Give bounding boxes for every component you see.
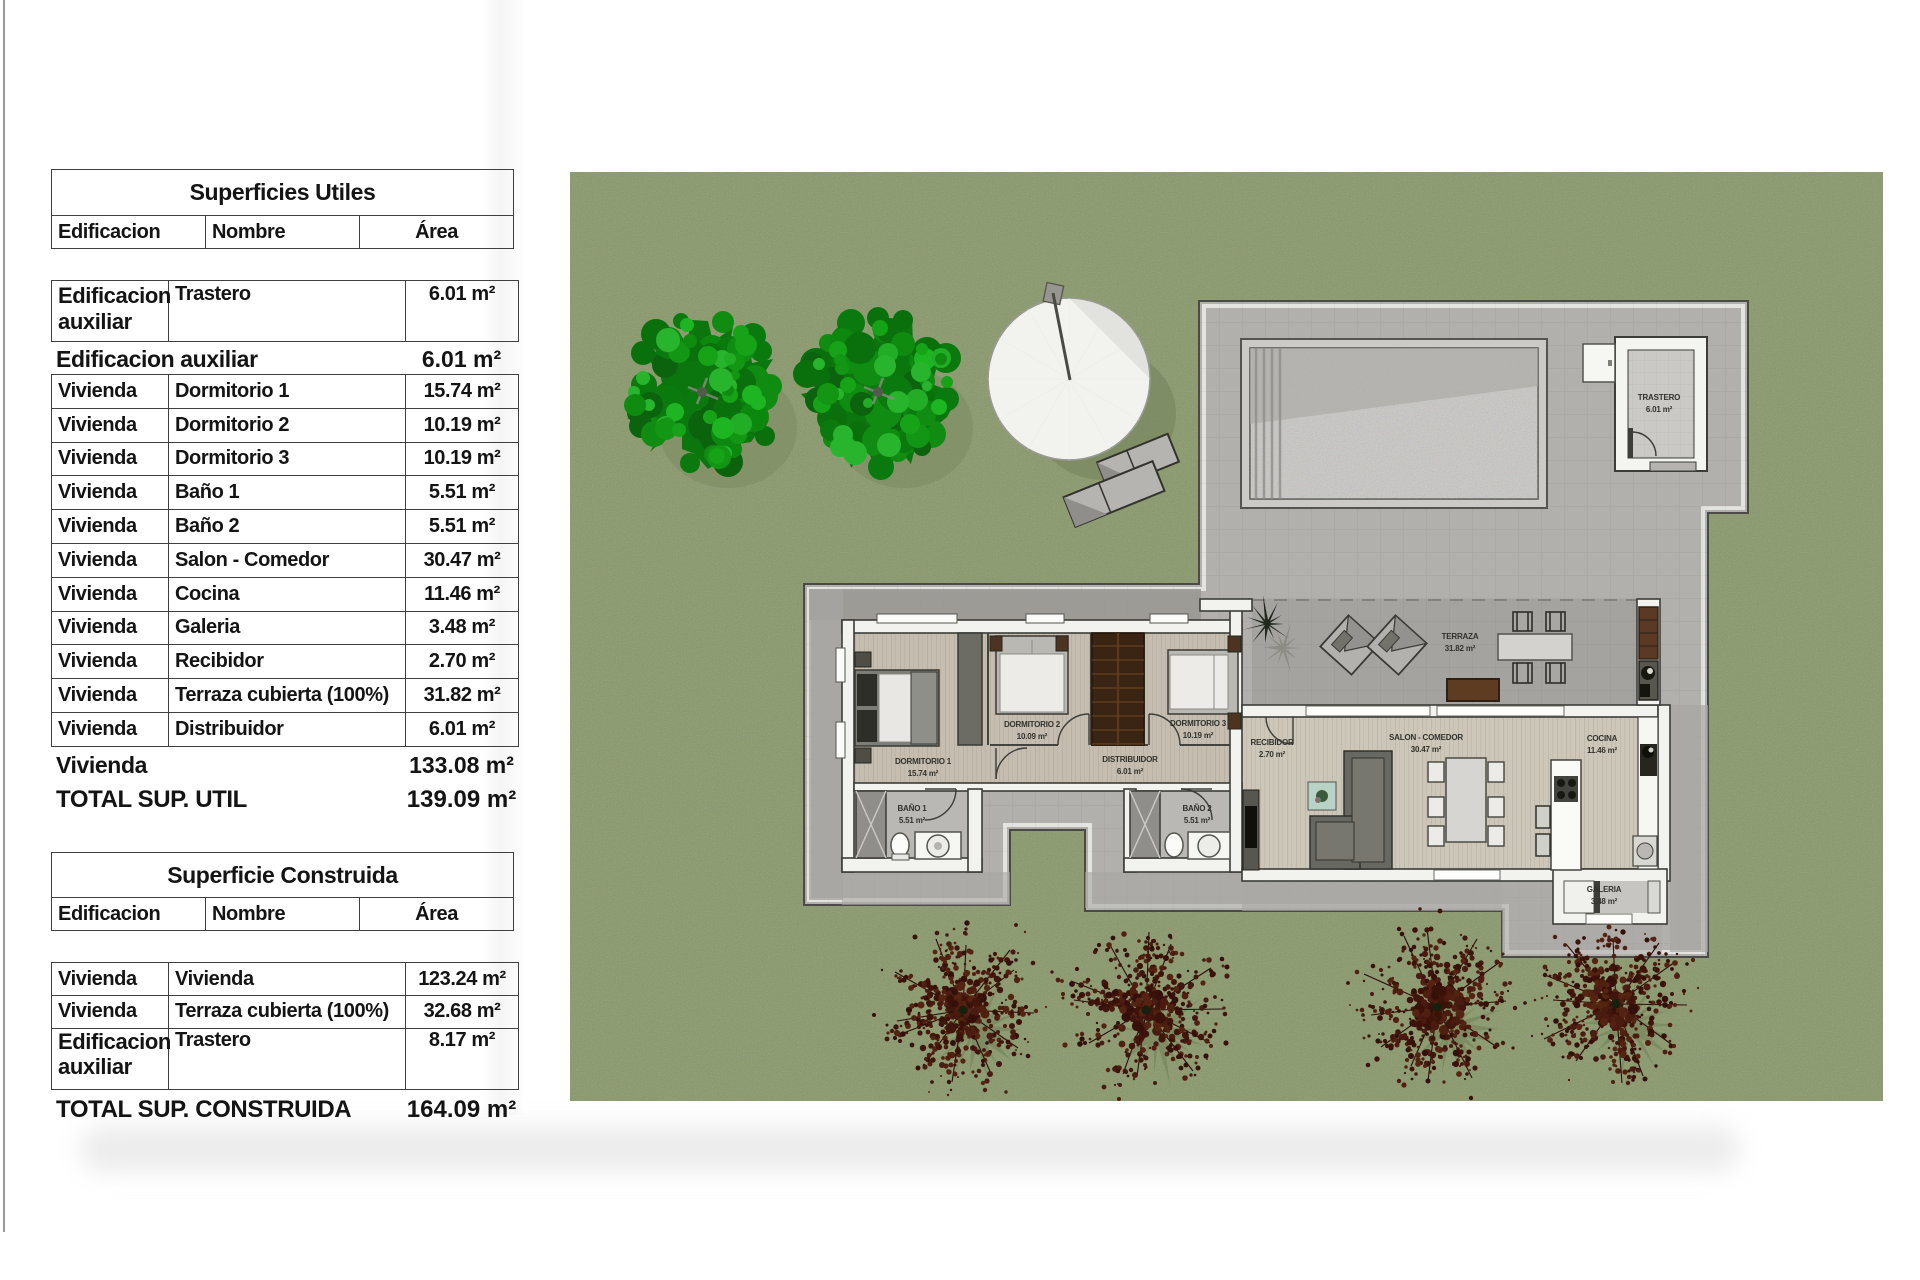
svg-text:10.09 m²: 10.09 m² [1017,732,1048,741]
svg-text:6.01 m²: 6.01 m² [1117,767,1144,776]
svg-text:BAÑO 1: BAÑO 1 [897,804,927,813]
svg-text:DORMITORIO 3: DORMITORIO 3 [1170,719,1227,728]
svg-text:10.19 m²: 10.19 m² [1183,731,1214,740]
svg-text:GALERIA: GALERIA [1587,885,1622,894]
svg-text:15.74 m²: 15.74 m² [908,769,939,778]
svg-text:11.46 m²: 11.46 m² [1587,746,1618,755]
svg-text:BAÑO 2: BAÑO 2 [1182,804,1212,813]
svg-text:DISTRIBUIDOR: DISTRIBUIDOR [1102,755,1158,764]
svg-text:5.51 m²: 5.51 m² [1184,816,1211,825]
svg-text:30.47 m²: 30.47 m² [1411,745,1442,754]
svg-text:2.70 m²: 2.70 m² [1259,750,1286,759]
svg-text:6.01 m²: 6.01 m² [1646,405,1673,414]
svg-text:DORMITORIO 2: DORMITORIO 2 [1004,720,1061,729]
svg-text:5.51 m²: 5.51 m² [899,816,926,825]
svg-text:RECIBIDOR: RECIBIDOR [1250,738,1294,747]
svg-text:TERRAZA: TERRAZA [1442,632,1479,641]
svg-text:3.48 m²: 3.48 m² [1591,897,1618,906]
svg-text:DORMITORIO 1: DORMITORIO 1 [895,757,952,766]
svg-text:TRASTERO: TRASTERO [1638,393,1680,402]
svg-text:COCINA: COCINA [1587,734,1618,743]
svg-text:31.82 m²: 31.82 m² [1445,644,1476,653]
svg-text:SALON - COMEDOR: SALON - COMEDOR [1389,733,1463,742]
